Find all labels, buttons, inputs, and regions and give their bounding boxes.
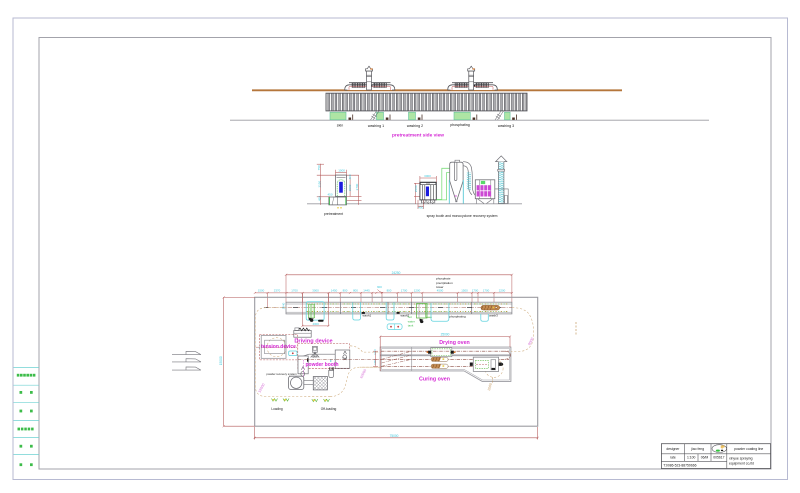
svg-text:rate: rate (670, 456, 676, 460)
svg-text:1700: 1700 (472, 289, 479, 293)
svg-text:3000: 3000 (312, 289, 319, 293)
svg-text:1445: 1445 (363, 289, 370, 293)
svg-text:2940: 2940 (282, 302, 286, 309)
svg-text:Drying oven: Drying oven (439, 340, 470, 346)
svg-text:wash1: wash1 (363, 313, 372, 317)
svg-text:25000: 25000 (441, 333, 450, 337)
svg-text:450: 450 (327, 192, 332, 196)
svg-text:xinyue spraying: xinyue spraying (729, 457, 753, 461)
svg-text:8500: 8500 (527, 337, 534, 346)
svg-text:4500: 4500 (437, 289, 444, 293)
svg-text:2500: 2500 (414, 185, 418, 192)
svg-text:15000: 15000 (219, 356, 223, 365)
svg-text:T:0086-523-88759666: T:0086-523-88759666 (663, 463, 696, 467)
svg-text:washing 1: washing 1 (368, 124, 384, 128)
svg-text:2700: 2700 (355, 183, 359, 190)
svg-text:10000: 10000 (359, 369, 367, 380)
svg-text:750: 750 (317, 165, 321, 170)
svg-text:75000: 75000 (390, 434, 399, 438)
svg-text:800: 800 (343, 289, 348, 293)
svg-text:24250: 24250 (392, 271, 401, 275)
svg-text:005617: 005617 (713, 456, 724, 460)
svg-text:1000: 1000 (338, 169, 345, 173)
svg-text:1450: 1450 (331, 289, 338, 293)
svg-text:phosphating: phosphating (450, 123, 470, 127)
svg-text:1500: 1500 (258, 289, 265, 293)
svg-text:washing 3: washing 3 (498, 124, 514, 128)
svg-text:tower: tower (436, 285, 444, 289)
svg-text:800: 800 (387, 289, 392, 293)
svg-text:1500: 1500 (461, 289, 468, 293)
svg-text:Off-loading: Off-loading (321, 407, 337, 411)
svg-text:600: 600 (377, 285, 382, 289)
svg-text:3000: 3000 (424, 174, 431, 178)
svg-text:1500: 1500 (348, 184, 352, 191)
svg-text:3150: 3150 (317, 181, 321, 188)
svg-text:1700: 1700 (483, 289, 490, 293)
svg-text:4000: 4000 (312, 322, 319, 326)
svg-text:pretreatment side view: pretreatment side view (392, 133, 444, 139)
svg-text:powder recovery system: powder recovery system (266, 372, 297, 376)
svg-text:400: 400 (348, 174, 352, 179)
svg-text:Curing oven: Curing oven (419, 376, 450, 382)
svg-text:450: 450 (317, 196, 321, 201)
svg-text:2200: 2200 (499, 289, 506, 293)
svg-text:pretreatment: pretreatment (324, 212, 343, 216)
svg-text:15000: 15000 (257, 383, 265, 394)
svg-text:spray booth and monocyclone re: spray booth and monocyclone recovery sys… (427, 214, 498, 218)
svg-text:powder booth: powder booth (305, 362, 338, 368)
svg-text:designer: designer (666, 447, 680, 451)
svg-text:1:100: 1:100 (687, 456, 696, 460)
svg-text:2370: 2370 (274, 289, 281, 293)
svg-text:1700: 1700 (401, 289, 408, 293)
svg-text:tank: tank (408, 324, 414, 328)
svg-text:06/M: 06/M (701, 456, 709, 460)
svg-text:tension device: tension device (261, 344, 296, 350)
svg-text:jiao feng: jiao feng (690, 447, 704, 451)
svg-text:1700: 1700 (291, 289, 298, 293)
svg-text:phosphating: phosphating (449, 314, 466, 318)
svg-text:powder coating line: powder coating line (734, 447, 763, 451)
svg-text:wash3: wash3 (489, 314, 498, 318)
svg-text:450: 450 (418, 205, 423, 209)
svg-text:1200: 1200 (414, 289, 421, 293)
svg-text:2000: 2000 (487, 383, 493, 391)
svg-text:washing 2: washing 2 (407, 124, 423, 128)
svg-text:800: 800 (353, 289, 358, 293)
svg-text:equipment co,ltd: equipment co,ltd (729, 462, 754, 466)
svg-text:Loading: Loading (271, 407, 283, 411)
svg-text:skin: skin (337, 123, 343, 127)
